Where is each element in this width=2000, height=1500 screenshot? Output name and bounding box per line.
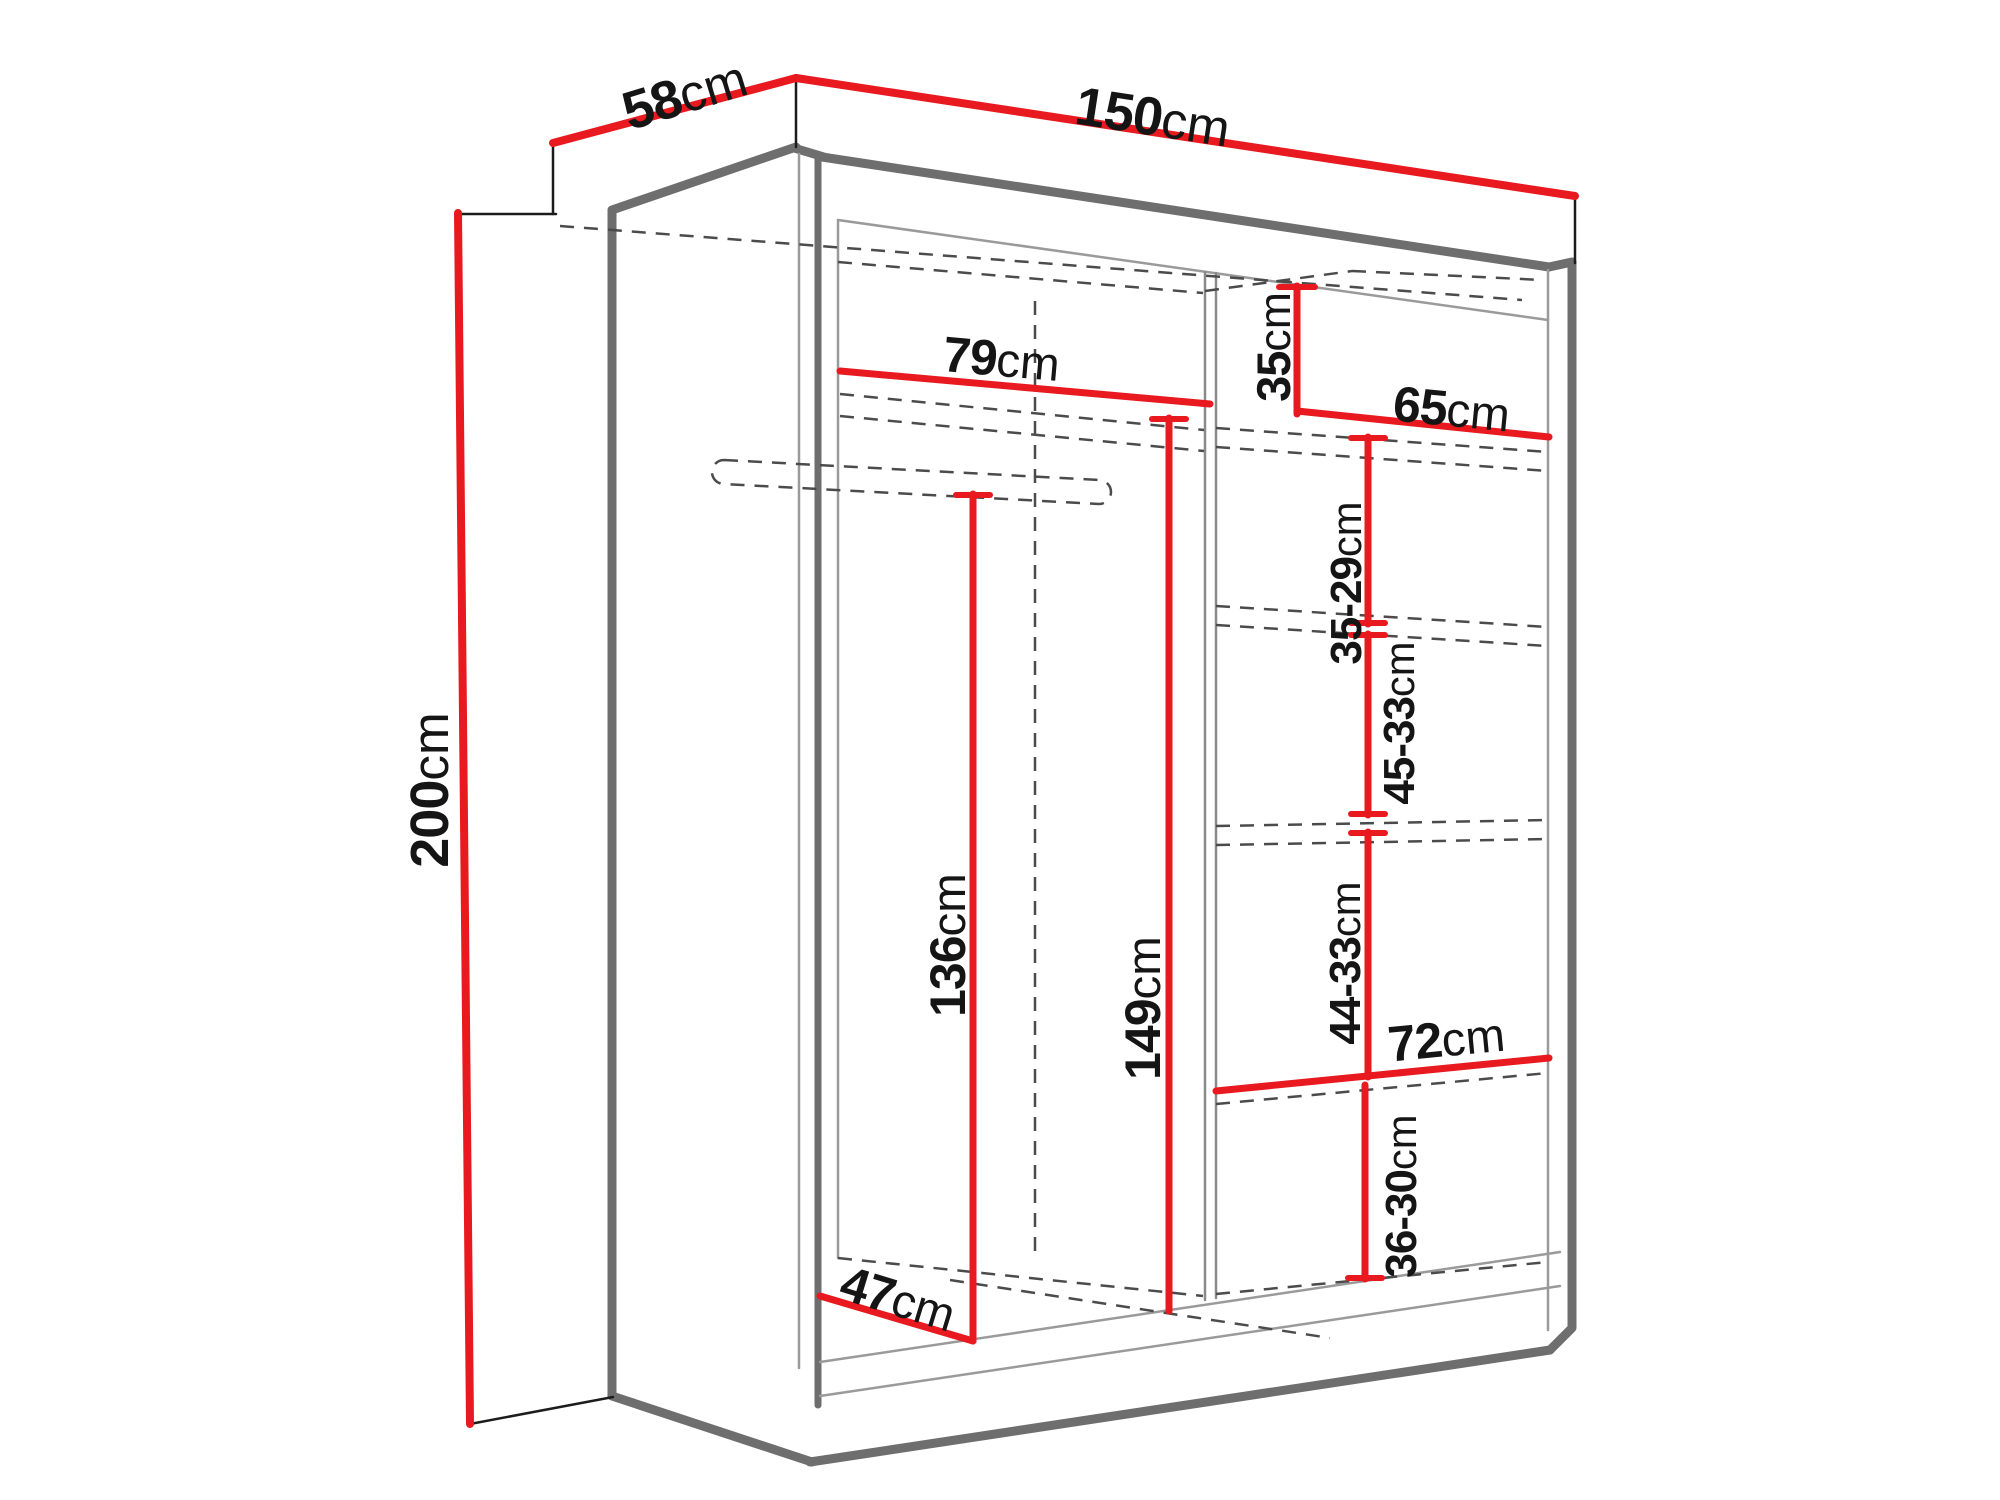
dim-label-width-150: 150cm xyxy=(1071,76,1234,159)
dim-label-top-shelf-35: 35cm xyxy=(1247,292,1300,402)
front-bottom-edge xyxy=(810,1350,1550,1462)
right-shelf1-dash-b xyxy=(1216,447,1548,471)
right-shelf3-dash-b xyxy=(1216,839,1548,845)
dim-label-right-width-65: 65cm xyxy=(1391,376,1513,443)
top-right-back-dash xyxy=(1352,271,1543,280)
dim-unit-45-33: cm xyxy=(1376,641,1423,697)
dim-unit-35: cm xyxy=(1251,292,1300,352)
side-panel-edge xyxy=(612,147,796,1396)
dimension-line-72 xyxy=(1216,1058,1549,1091)
dim-label-gap-44-33: 44-33cm xyxy=(1321,881,1370,1044)
dim-label-height-200: 200cm xyxy=(400,712,460,868)
dim-value-65: 65 xyxy=(1391,376,1450,437)
dim-unit-44-33: cm xyxy=(1322,881,1369,937)
dim-value-72: 72 xyxy=(1385,1012,1444,1073)
dimension-labels: 58cm 150cm 200cm 79cm 35cm 65cm 35-29cm … xyxy=(400,48,1513,1343)
side-panel-bottom-edge xyxy=(612,1396,812,1462)
left-shelf-dash-b xyxy=(840,416,1204,451)
dim-value-150: 150 xyxy=(1071,76,1166,148)
height-bottom-connector xyxy=(470,1397,613,1424)
dim-value-136: 136 xyxy=(920,936,976,1016)
dim-value-36-30: 36-30 xyxy=(1377,1170,1426,1278)
diagram-canvas: 58cm 150cm 200cm 79cm 35cm 65cm 35-29cm … xyxy=(0,0,2000,1500)
dim-unit-149: cm xyxy=(1118,936,1171,999)
top-panel-front-dash xyxy=(838,262,1203,293)
dim-value-79: 79 xyxy=(941,326,999,386)
dim-unit-65: cm xyxy=(1444,384,1512,443)
dim-unit-200: cm xyxy=(402,712,459,780)
dim-unit-150: cm xyxy=(1158,91,1234,158)
dim-value-35: 35 xyxy=(1247,352,1300,402)
dim-label-depth-58: 58cm xyxy=(615,48,753,142)
dim-value-35-29: 35-29 xyxy=(1322,557,1371,665)
hanging-rod xyxy=(712,460,1111,504)
dim-label-gap-45-33: 45-33cm xyxy=(1375,641,1424,804)
dim-label-gap-36-30: 36-30cm xyxy=(1377,1114,1426,1277)
dim-unit-58: cm xyxy=(672,50,754,125)
dim-label-hanging-136: 136cm xyxy=(920,873,976,1017)
dim-label-gap-35-29: 35-29cm xyxy=(1322,501,1371,664)
dim-label-column-149: 149cm xyxy=(1115,936,1171,1080)
wardrobe-dimension-diagram: 58cm 150cm 200cm 79cm 35cm 65cm 35-29cm … xyxy=(0,0,2000,1500)
dim-unit-72: cm xyxy=(1439,1009,1507,1068)
front-right-edge xyxy=(1549,262,1572,1350)
dim-label-left-width-79: 79cm xyxy=(941,326,1062,392)
dim-unit-136: cm xyxy=(923,873,976,936)
dim-unit-36-30: cm xyxy=(1378,1114,1425,1170)
dim-value-149: 149 xyxy=(1115,999,1171,1079)
dim-value-45-33: 45-33 xyxy=(1375,697,1424,805)
dim-value-200: 200 xyxy=(400,781,460,868)
dim-label-bottom-shelf-72: 72cm xyxy=(1385,1006,1507,1073)
dim-unit-35-29: cm xyxy=(1323,501,1370,557)
right-shelf3-dash-a xyxy=(1216,820,1548,826)
dim-value-44-33: 44-33 xyxy=(1321,937,1370,1045)
dim-unit-79: cm xyxy=(994,334,1062,392)
